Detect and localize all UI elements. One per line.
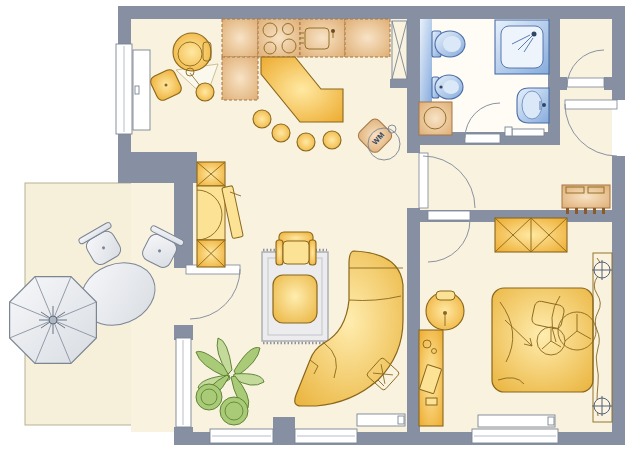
kitchen-counter-module [222, 57, 258, 100]
sink-module [300, 19, 345, 57]
kitchen-counter-module [345, 19, 390, 57]
bar-stool [323, 131, 341, 149]
plant-pot [220, 397, 248, 425]
wall-living-bedroom-stub [407, 145, 420, 153]
wall-west-living-a [174, 152, 193, 268]
wall-window-pier [273, 417, 295, 432]
window-handle [135, 86, 139, 94]
radiator-living-valve [398, 416, 404, 424]
sideboard-leg [584, 208, 587, 214]
floor-plan-page: WM [0, 0, 640, 454]
armchair-arm [276, 240, 283, 265]
window-living-west [176, 338, 191, 427]
wall-storage-nub-right [604, 77, 614, 90]
plant-pot [196, 384, 222, 410]
sideboard-leg [566, 208, 569, 214]
window-living-south-2 [295, 429, 357, 443]
chair-back [436, 291, 455, 300]
desk [419, 330, 443, 426]
sideboard-leg [575, 208, 578, 214]
toilet-bowl-inner [443, 36, 461, 52]
shower [495, 20, 549, 74]
coffee-table [273, 275, 317, 323]
door-leaf [428, 211, 470, 220]
door-leaf [419, 153, 428, 208]
tub-chair [173, 33, 211, 71]
towel-hook [505, 127, 512, 136]
armchair [276, 232, 316, 265]
desk-chair [426, 291, 464, 330]
desk-book [426, 398, 437, 405]
bar-stool [253, 110, 271, 128]
door-leaf [465, 134, 500, 143]
door-leaf [565, 100, 617, 109]
wall-right-lower [612, 156, 625, 445]
window-frame [176, 338, 191, 427]
towel-rail [512, 129, 544, 136]
chair-button [165, 84, 168, 87]
bar-stool [272, 124, 290, 142]
sideboard-top [562, 185, 610, 208]
dining-stool [196, 83, 214, 101]
faucet-icon [331, 29, 335, 33]
bidet-bowl-inner [443, 80, 459, 94]
kitchen-counter-module [222, 19, 258, 57]
radiator-bedroom [478, 415, 555, 427]
sideboard-leg [593, 208, 596, 214]
bidet [432, 75, 463, 99]
floor-plan-drawing: WM [0, 0, 640, 454]
radiator-bedroom-valve [548, 417, 554, 425]
basin-faucet [542, 103, 546, 107]
basin-bowl [522, 91, 542, 119]
mattress [492, 288, 593, 392]
wall-kitchen-bath [407, 19, 420, 132]
parasol [10, 277, 97, 364]
wall-living-bedroom [407, 208, 420, 432]
armchair-arm [309, 240, 316, 265]
bidet-faucet [439, 85, 442, 88]
shower-base [501, 26, 543, 68]
armchair-seat [283, 241, 309, 264]
washbasin [517, 88, 549, 123]
bar-stool [297, 133, 315, 151]
washing-machine [419, 102, 452, 135]
tile-strip [420, 19, 432, 103]
wall-top [118, 6, 625, 19]
toilet [432, 31, 465, 57]
wall-storage-nub-left [557, 77, 567, 90]
door-leaf [567, 78, 604, 87]
chair-center [443, 311, 447, 315]
window-bedroom-south [472, 429, 558, 443]
wardrobe [495, 218, 567, 252]
shower-head-icon [532, 32, 537, 37]
parasol-pole [49, 316, 57, 324]
window-living-south-1 [210, 429, 273, 443]
sideboard-leg [602, 208, 605, 214]
window-kitchen-west [116, 44, 150, 134]
wall-cabinet-nub [390, 79, 407, 88]
